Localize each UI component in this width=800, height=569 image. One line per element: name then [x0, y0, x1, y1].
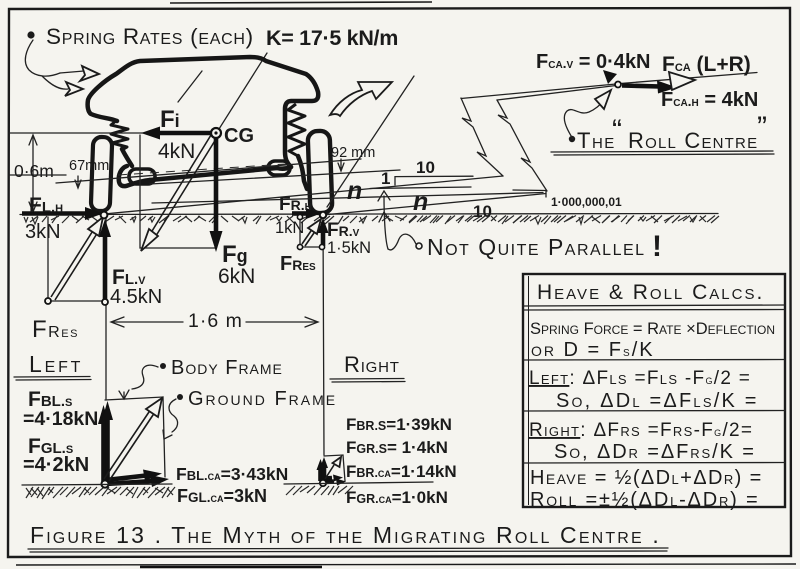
- svg-text:FR.v: FR.v: [327, 220, 360, 241]
- svg-text:Spring Rates (each): Spring Rates (each): [46, 24, 254, 49]
- svg-text:FR.h: FR.h: [279, 194, 312, 215]
- svg-text:6kN: 6kN: [218, 265, 255, 288]
- svg-text:1·6 m: 1·6 m: [188, 310, 243, 332]
- svg-text:4kN: 4kN: [158, 140, 195, 163]
- svg-text:Spring Force = Rate ×Deflectio: Spring Force = Rate ×Deflection: [530, 320, 775, 338]
- svg-text:0·6m: 0·6m: [14, 161, 54, 181]
- svg-text:10: 10: [416, 158, 435, 177]
- svg-text:!: !: [652, 230, 662, 263]
- svg-text:1·000,000,01: 1·000,000,01: [551, 195, 622, 209]
- svg-text:Figure 13 . The Myth of the Mi: Figure 13 . The Myth of the Migrating Ro…: [30, 522, 661, 548]
- svg-text:67mm: 67mm: [69, 158, 109, 174]
- svg-text:CG: CG: [224, 125, 254, 147]
- svg-text:Fca.h = 4kN: Fca.h = 4kN: [661, 89, 758, 111]
- svg-text:FRes: FRes: [280, 253, 316, 275]
- svg-text:Roll Centre: Roll Centre: [628, 128, 758, 153]
- svg-text:Not Quite Parallel: Not Quite Parallel: [427, 234, 646, 260]
- svg-text:The: The: [577, 128, 616, 153]
- svg-text:So, ΔDR =ΔFRS/K =: So, ΔDR =ΔFRS/K =: [554, 441, 756, 463]
- svg-text:“: “: [612, 114, 622, 147]
- svg-text:10: 10: [473, 202, 492, 221]
- svg-text:Right: ΔFRS =FRS-Fg/2=: Right: ΔFRS =FRS-Fg/2=: [529, 420, 753, 441]
- svg-text:3kN: 3kN: [25, 221, 61, 243]
- svg-text:Fi: Fi: [160, 106, 180, 133]
- svg-text:=4·18kN: =4·18kN: [23, 408, 98, 430]
- svg-text:n: n: [413, 188, 428, 216]
- svg-text:So, ΔDL =ΔFLS/K =: So, ΔDL =ΔFLS/K =: [556, 390, 759, 412]
- svg-text:1·5kN: 1·5kN: [327, 239, 371, 257]
- svg-text:Left: ΔFLS =FLS -Fg/2 =: Left: ΔFLS =FLS -Fg/2 =: [529, 368, 751, 389]
- svg-text:”: ”: [757, 111, 767, 144]
- svg-text:Body Frame: Body Frame: [171, 357, 283, 379]
- svg-text:Right: Right: [344, 352, 400, 377]
- svg-text:4.5kN: 4.5kN: [110, 286, 162, 308]
- svg-text:or D = Fs/K: or D = Fs/K: [531, 339, 655, 361]
- svg-text:Fg: Fg: [222, 241, 248, 268]
- svg-text:n: n: [347, 177, 362, 205]
- svg-text:Left: Left: [29, 351, 83, 377]
- svg-text:Heave & Roll Calcs.: Heave & Roll Calcs.: [537, 281, 764, 304]
- svg-text:Ground Frame: Ground Frame: [188, 388, 337, 410]
- svg-text:1: 1: [381, 169, 390, 188]
- svg-text:92 mm: 92 mm: [331, 145, 375, 161]
- svg-text:K= 17·5 kN/m: K= 17·5 kN/m: [266, 26, 398, 50]
- svg-text:Fca.v = 0·4kN: Fca.v = 0·4kN: [536, 51, 651, 73]
- svg-text:=4·2kN: =4·2kN: [23, 454, 89, 476]
